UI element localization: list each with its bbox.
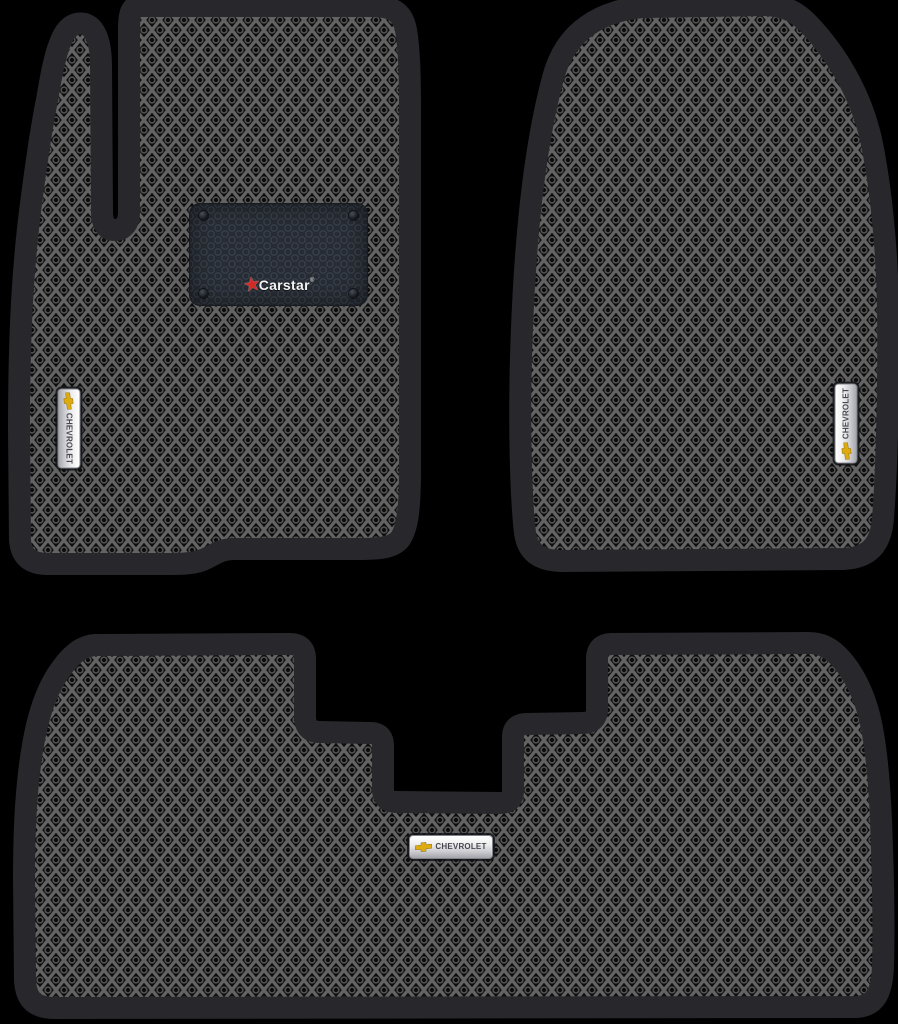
registered-trademark-symbol: ® — [310, 278, 314, 284]
carstar-brand-text: Carstar — [259, 277, 310, 293]
car-mats-product-photo: ★ Carstar ® CHEVROLET CHEVROLET CHEVROLE… — [0, 0, 898, 1024]
carstar-star-icon: ★ — [241, 274, 262, 297]
badge-label: CHEVROLET — [435, 843, 486, 851]
patch-screw-icon — [199, 289, 208, 298]
chevrolet-bowtie-icon — [64, 393, 74, 410]
patch-screw-icon — [349, 211, 358, 220]
patch-screw-icon — [199, 211, 208, 220]
mats-illustration — [0, 0, 898, 1024]
carstar-heel-pad-patch: ★ Carstar ® — [190, 204, 367, 305]
rear-mat — [24, 643, 883, 1008]
chevrolet-badge-rear: CHEVROLET — [409, 835, 493, 859]
patch-screw-icon — [349, 289, 358, 298]
chevrolet-badge-front-left: CHEVROLET — [58, 389, 81, 469]
badge-label: CHEVROLET — [842, 388, 850, 439]
chevrolet-bowtie-icon — [841, 442, 851, 459]
chevrolet-bowtie-icon — [415, 842, 432, 852]
carstar-logo: ★ Carstar ® — [243, 275, 315, 295]
chevrolet-badge-front-right: CHEVROLET — [835, 384, 858, 464]
front-right-mat — [520, 5, 888, 561]
badge-label: CHEVROLET — [65, 413, 73, 464]
